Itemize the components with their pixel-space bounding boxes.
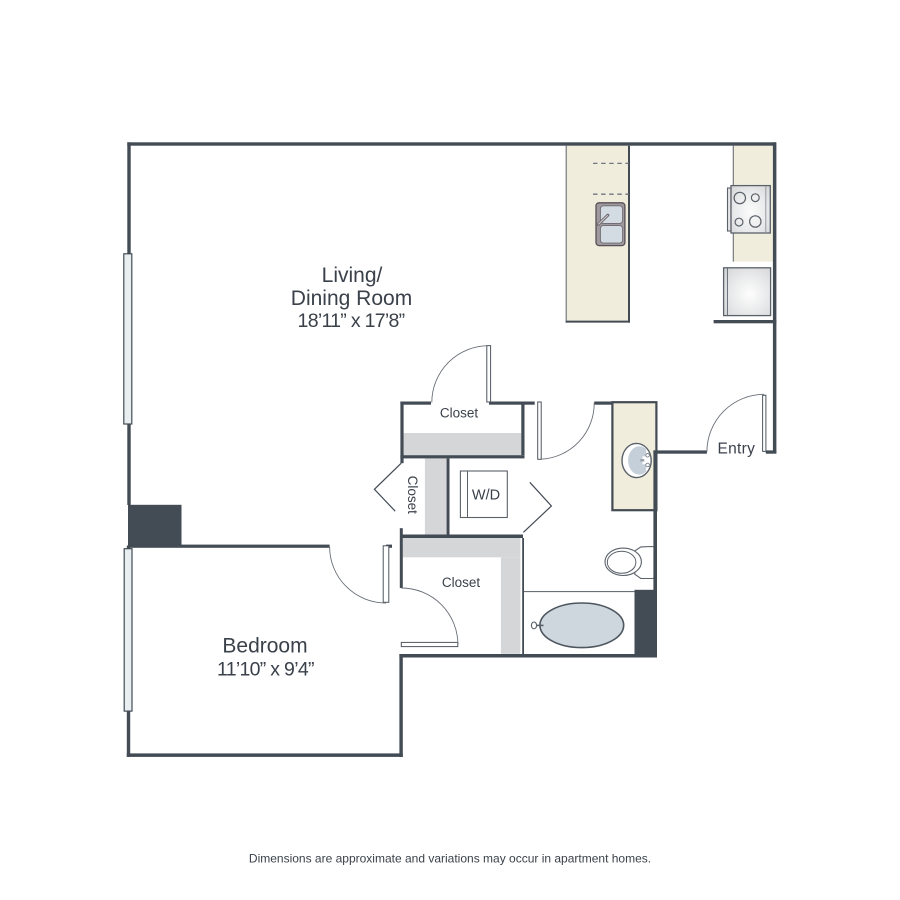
svg-text:Living/: Living/ (322, 264, 383, 287)
svg-text:W/D: W/D (472, 488, 500, 504)
svg-text:Closet: Closet (405, 476, 420, 515)
svg-text:Dining Room: Dining Room (291, 287, 412, 310)
svg-text:Closet: Closet (442, 575, 481, 590)
svg-text:Entry: Entry (717, 441, 755, 458)
svg-text:18’11” x 17’8”: 18’11” x 17’8” (298, 310, 405, 332)
svg-text:Dimensions are approximate and: Dimensions are approximate and variation… (249, 852, 651, 866)
svg-text:11’10” x 9’4”: 11’10” x 9’4” (217, 659, 314, 681)
svg-text:Closet: Closet (440, 406, 479, 421)
svg-text:Bedroom: Bedroom (222, 635, 307, 658)
